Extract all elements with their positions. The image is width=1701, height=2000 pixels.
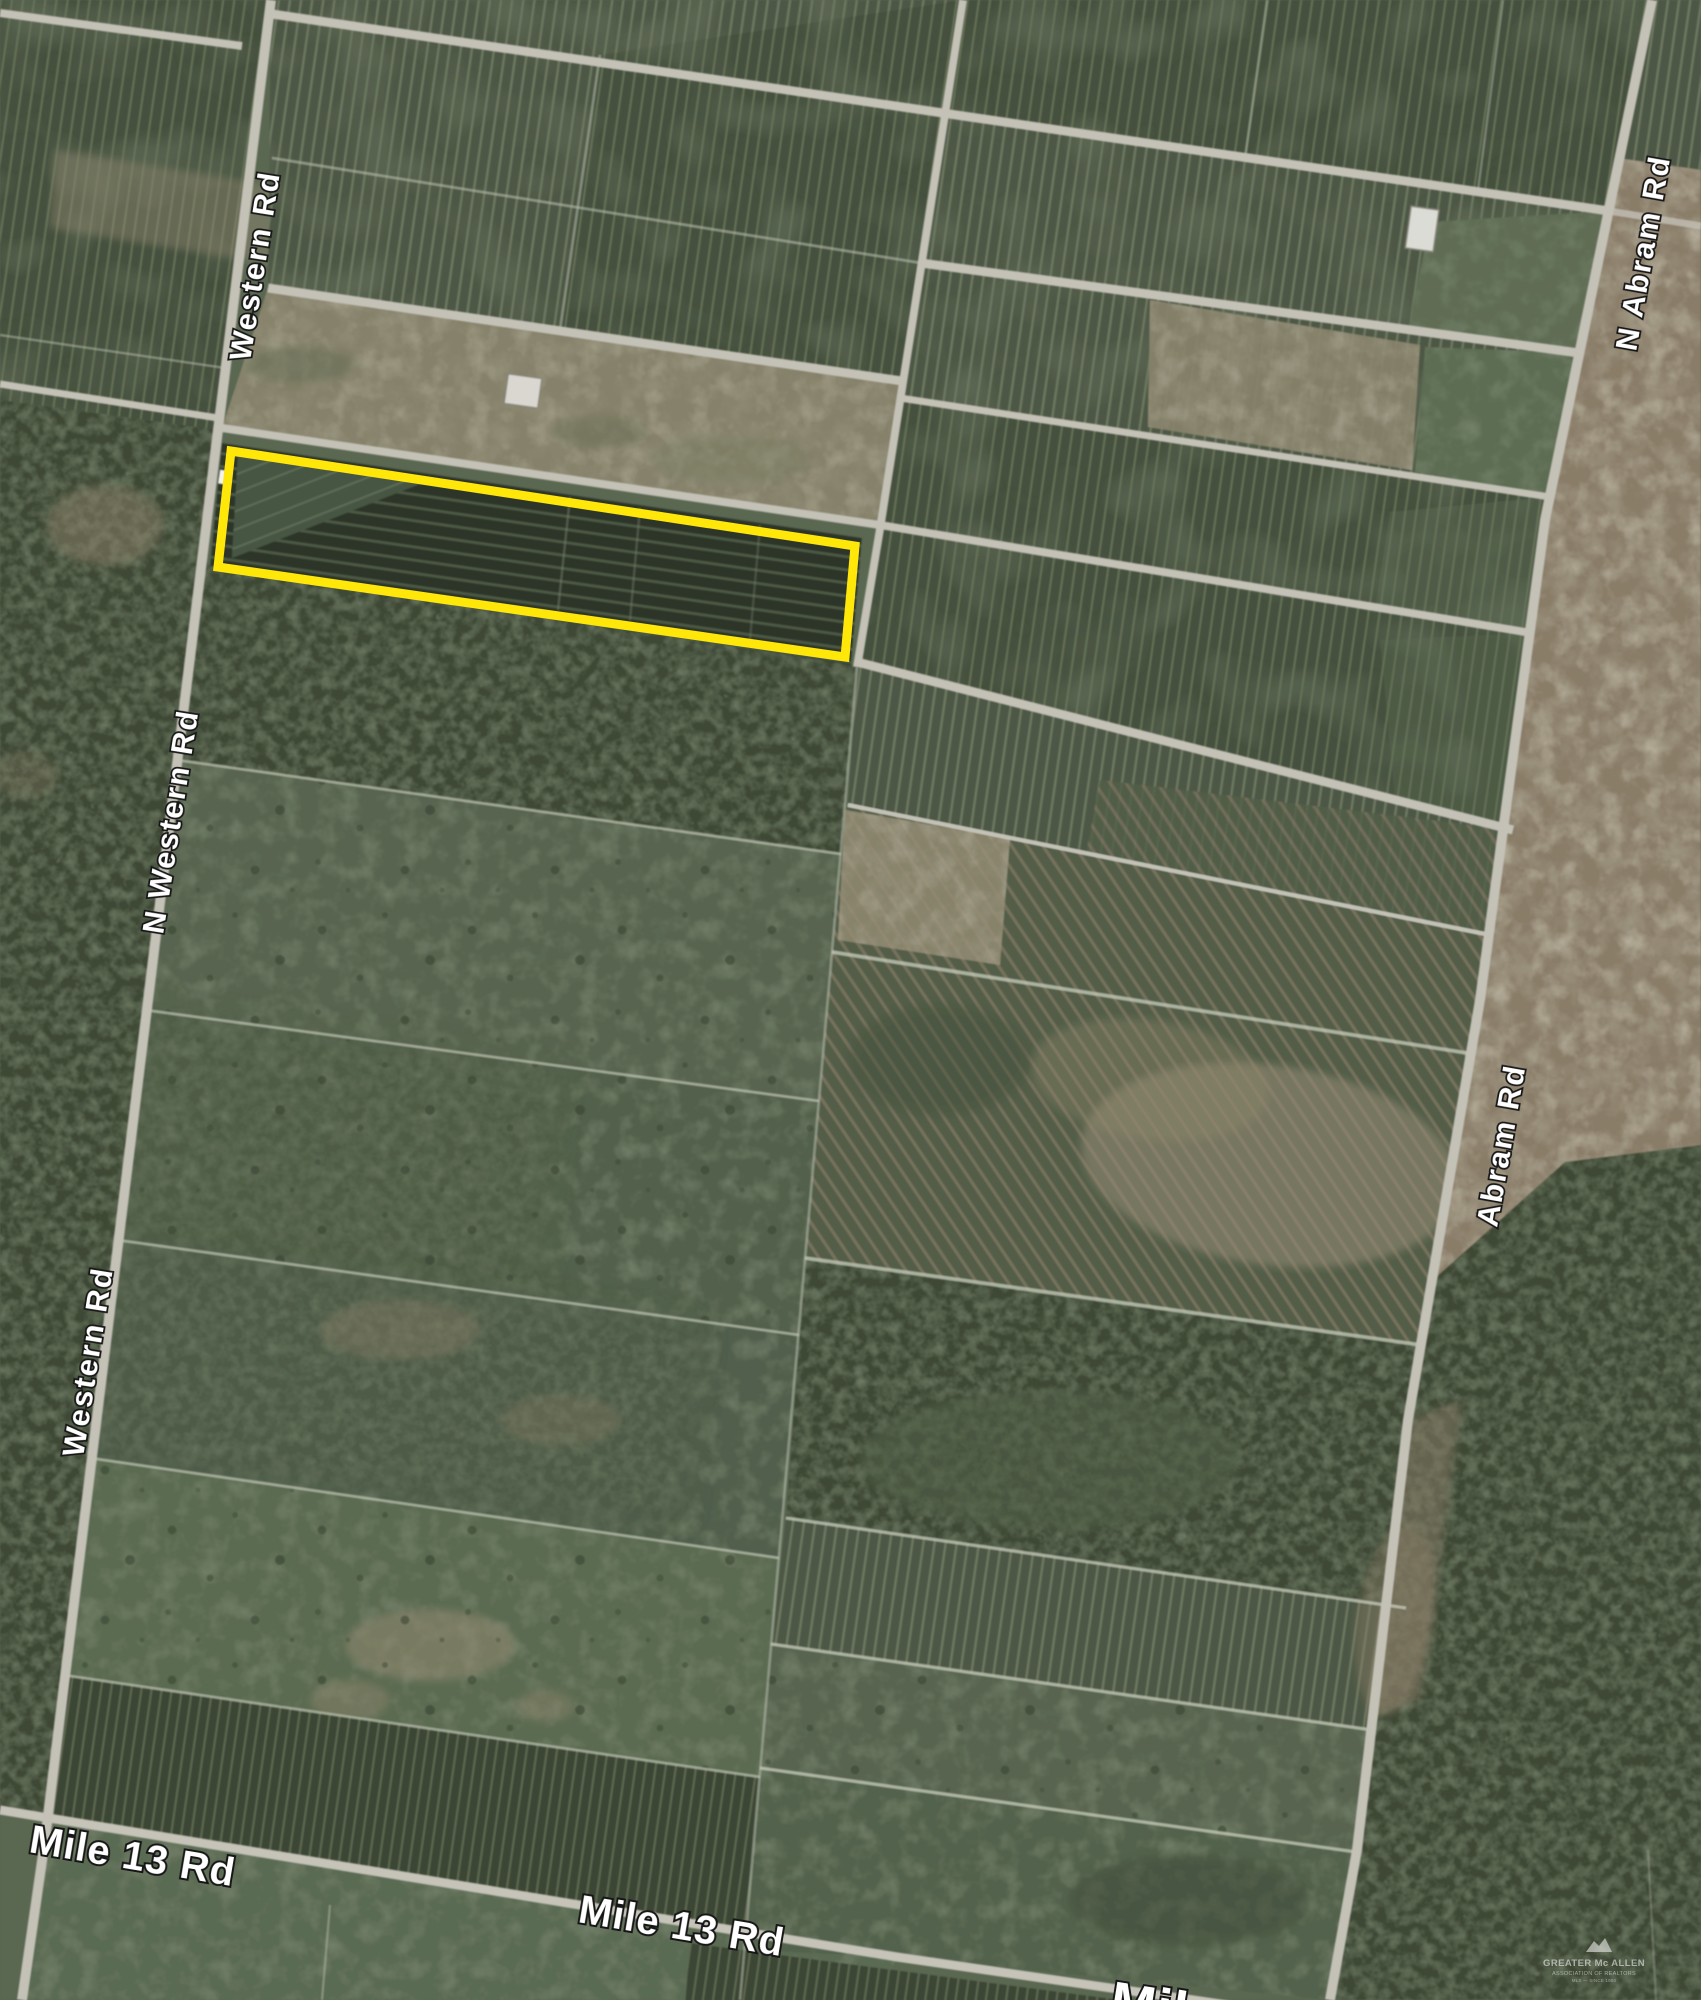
svg-text:MLS — SINCE 1950: MLS — SINCE 1950 (1572, 1978, 1617, 1983)
svg-text:GREATER Mc ALLEN: GREATER Mc ALLEN (1543, 1958, 1645, 1969)
svg-text:ASSOCIATION OF REALTORS: ASSOCIATION OF REALTORS (1552, 1971, 1636, 1977)
